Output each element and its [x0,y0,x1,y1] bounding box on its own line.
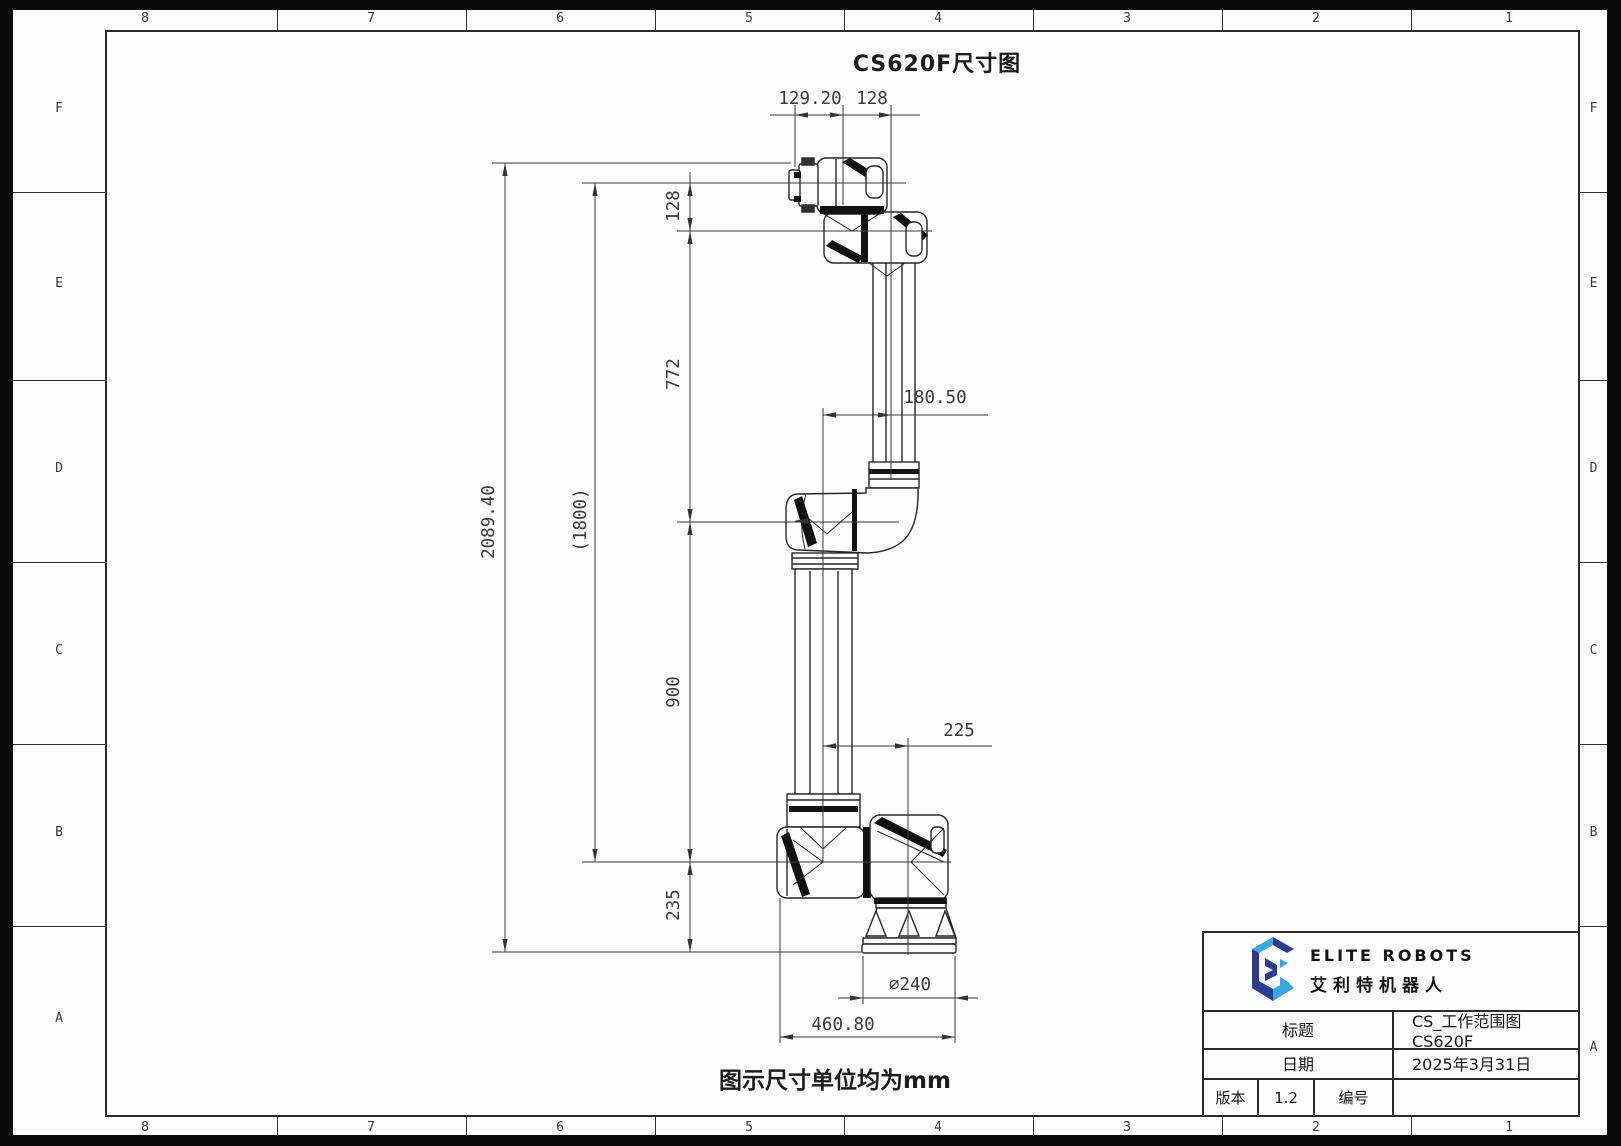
dim-460-80: 460.80 [811,1015,874,1035]
number-label: 编号 [1315,1080,1392,1115]
date-label: 日期 [1204,1050,1392,1076]
dim-2089-40: 2089.40 [479,485,499,559]
dim-235: 235 [664,889,684,921]
dim-225: 225 [943,721,975,741]
dim-772: 772 [664,358,684,390]
version-label: 版本 [1204,1080,1257,1115]
version-value: 1.2 [1259,1080,1313,1115]
dim-180-50: 180.50 [903,388,966,408]
dim-900: 900 [664,676,684,708]
title-value: CS_工作范围图 CS620F [1412,1012,1578,1046]
dim-1800: (1800) [571,488,591,551]
dim-128-top: 128 [856,89,888,109]
brand-name-en: ELITE ROBOTS [1310,946,1560,965]
date-value: 2025年3月31日 [1412,1050,1578,1076]
number-value [1394,1080,1578,1115]
elite-robots-logo [1244,935,1302,1003]
title-label: 标题 [1204,1012,1392,1046]
drawing-canvas: 8 7 6 5 4 3 2 1 8 7 6 5 4 3 2 1 F E D C … [0,0,1621,1146]
brand-name-cn: 艾利特机器人 [1310,971,1560,996]
dim-129-20: 129.20 [778,89,841,109]
dim-128-side: 128 [664,190,684,222]
dim-240: ∅240 [889,975,931,995]
robot-arm-drawing [777,158,956,953]
